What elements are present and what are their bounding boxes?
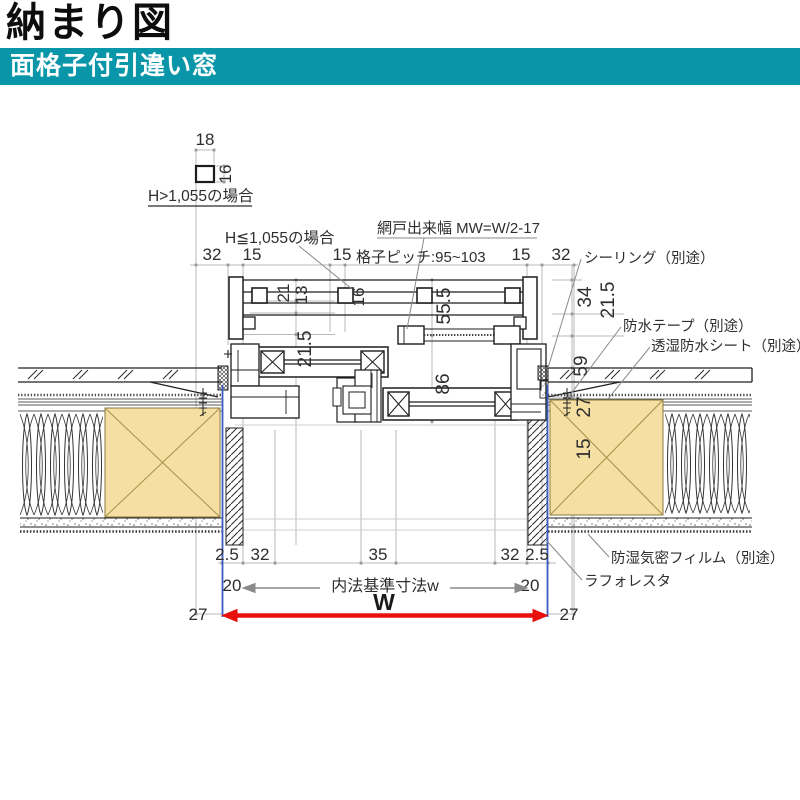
dim-32-bottom-right: 32 — [501, 545, 520, 564]
insulation-batt — [20, 412, 103, 517]
dim-15-right-stack: 15 — [574, 438, 595, 459]
grille-pitch-label: 格子ピッチ:95~103 — [356, 249, 486, 266]
interior-finish-band — [548, 518, 752, 532]
wood-stud — [105, 408, 220, 517]
grille-bar — [505, 288, 520, 303]
dim-15-top-left: 15 — [243, 245, 262, 264]
grille-bar — [252, 288, 267, 303]
interior-finish-band — [20, 518, 222, 532]
breathable-sheet-label: 透湿防水シート（別途） — [651, 338, 800, 355]
grille-bracket — [243, 317, 255, 329]
dim-59: 59 — [571, 355, 592, 376]
detail-dim-height: 16 — [216, 165, 235, 184]
dim-32-top-left: 32 — [203, 245, 222, 264]
sealant-backer — [538, 366, 548, 380]
dim-21-5-left: 21.5 — [295, 331, 316, 368]
dim-21: 21 — [274, 284, 293, 303]
meeting-stile-interlock — [333, 370, 381, 422]
grille-bar-square — [196, 166, 214, 182]
grille-bar-detail-callout: 18 16 H>1,055の場合 — [148, 130, 254, 206]
dim-2-5-left: 2.5 — [215, 545, 239, 564]
grille-bar — [417, 288, 432, 303]
dim-27-bottom-left: 27 — [189, 605, 208, 624]
dim-20-right: 20 — [521, 576, 540, 595]
sealing-label: シーリング（別途） — [584, 250, 715, 267]
left-jamb-liner — [226, 428, 243, 545]
dim-27-bottom-right: 27 — [560, 605, 579, 624]
dim-15-top-right: 15 — [512, 245, 531, 264]
installation-drawing: 18 16 H>1,055の場合 — [0, 0, 800, 800]
detail-dim-width: 18 — [196, 130, 215, 149]
case-le-label: H≦1,055の場合 — [225, 229, 335, 247]
dim-55-5: 55.5 — [434, 288, 455, 325]
screen-width-label: 網戸出来幅 MW=W/2-17 — [377, 220, 540, 237]
dim-34: 34 — [575, 286, 596, 308]
dim-86: 86 — [433, 373, 454, 394]
left-wall-section — [18, 368, 222, 532]
waterproof-tape-label: 防水テープ（別途） — [623, 318, 753, 335]
dim-15-top-mid: 15 — [333, 245, 352, 264]
dim-20-left: 20 — [223, 576, 242, 595]
dim-2-5-right: 2.5 — [525, 545, 549, 564]
insect-screen — [398, 326, 520, 344]
dim-16: 16 — [349, 288, 368, 307]
dim-32-bottom-left: 32 — [251, 545, 270, 564]
dim-27-right-stack: 27 — [574, 396, 595, 417]
dim-21-5-right: 21.5 — [598, 282, 619, 319]
right-jamb-liner — [528, 420, 547, 545]
window-frame — [218, 277, 548, 422]
wood-stud — [550, 400, 663, 515]
dim-13: 13 — [292, 286, 311, 305]
insulation-batt — [665, 412, 750, 515]
page: { "header": { "title": "納まり図", "subtitle… — [0, 0, 800, 800]
right-jamb-profile — [511, 344, 548, 420]
overall-width-label: W — [373, 589, 395, 615]
detail-case-label: H>1,055の場合 — [148, 187, 254, 205]
dim-32-top-right: 32 — [552, 245, 571, 264]
laforesta-label: ラフォレスタ — [584, 573, 671, 590]
dim-35: 35 — [369, 545, 388, 564]
moisture-film-label: 防湿気密フィルム（別途） — [611, 550, 784, 567]
